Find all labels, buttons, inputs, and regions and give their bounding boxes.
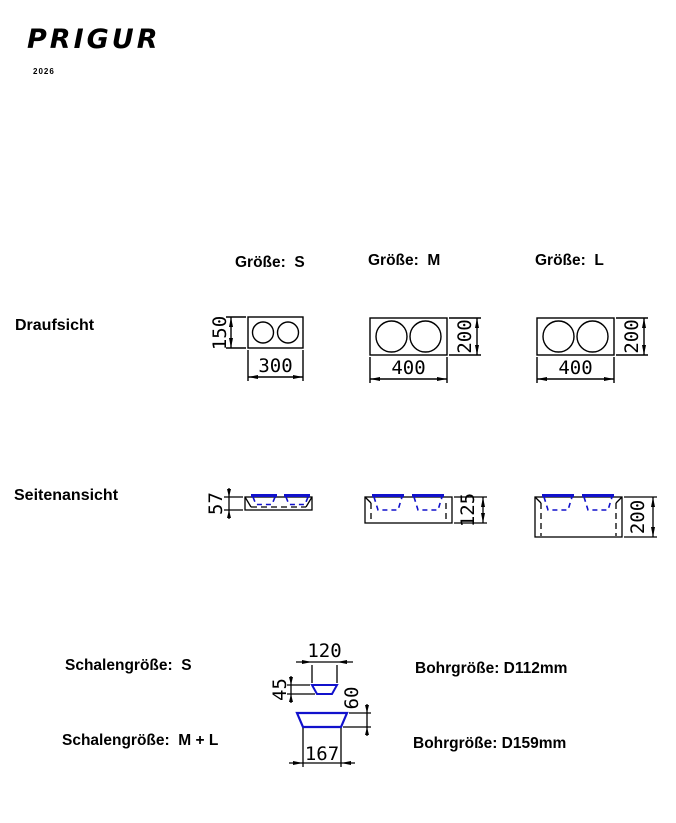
dim-bowl-ml-depth: 60 (341, 687, 363, 710)
technical-drawing-canvas: 150 300 200 400 (0, 0, 676, 823)
dim-bowl-ml-width: 167 (305, 743, 339, 765)
dim-l-top-height: 200 (621, 319, 643, 353)
side-view-m-bowls (372, 496, 444, 511)
bowl-s-profile (312, 685, 337, 694)
dim-l-top-width: 400 (558, 357, 592, 379)
dim-bowl-s-width: 120 (307, 640, 341, 662)
side-view-s (224, 488, 312, 519)
dim-m-top-width: 400 (391, 357, 425, 379)
dim-s-top-width: 300 (258, 355, 292, 377)
dim-bowl-s-depth: 45 (269, 678, 291, 701)
bowl-ml-profile (297, 713, 347, 727)
dim-m-top-height: 200 (454, 319, 476, 353)
dim-s-side-height: 57 (205, 492, 227, 515)
dim-l-side-height: 200 (627, 500, 649, 534)
dim-s-top-height: 150 (209, 316, 231, 350)
dim-m-side-height: 125 (457, 493, 479, 527)
drawing-sheet: PRIGUR 2026 Größe: S Größe: M Größe: L D… (0, 0, 676, 823)
side-view-l-bowls (542, 496, 614, 511)
